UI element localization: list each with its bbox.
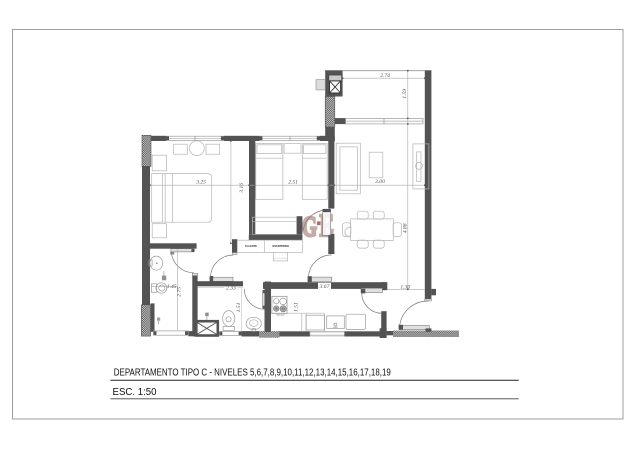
svg-text:3.00: 3.00	[374, 179, 385, 185]
svg-text:1.51: 1.51	[236, 302, 242, 312]
svg-text:2.75: 2.75	[177, 287, 183, 297]
svg-text:1.45: 1.45	[167, 284, 177, 290]
svg-text:ESCRITORIO: ESCRITORIO	[272, 244, 289, 248]
svg-text:1.59: 1.59	[402, 89, 408, 99]
svg-text:4.88: 4.88	[403, 223, 409, 233]
svg-text:1.51: 1.51	[293, 302, 299, 312]
svg-text:DEPARTAMENTO TIPO C - NIVELES: DEPARTAMENTO TIPO C - NIVELES 5,6,7,8,9,…	[114, 368, 391, 379]
svg-text:PLACARD: PLACARD	[245, 244, 257, 248]
svg-text:1.30: 1.30	[400, 285, 410, 291]
svg-text:50x60: 50x60	[276, 313, 285, 317]
svg-text:3.16: 3.16	[239, 183, 245, 194]
svg-text:2.74: 2.74	[380, 73, 390, 79]
svg-text:3.67: 3.67	[319, 284, 330, 290]
svg-text:2.51: 2.51	[288, 180, 298, 186]
svg-text:2.33: 2.33	[226, 286, 236, 292]
svg-text:3.25: 3.25	[195, 179, 206, 185]
svg-text:ESC. 1:50: ESC. 1:50	[113, 387, 158, 398]
